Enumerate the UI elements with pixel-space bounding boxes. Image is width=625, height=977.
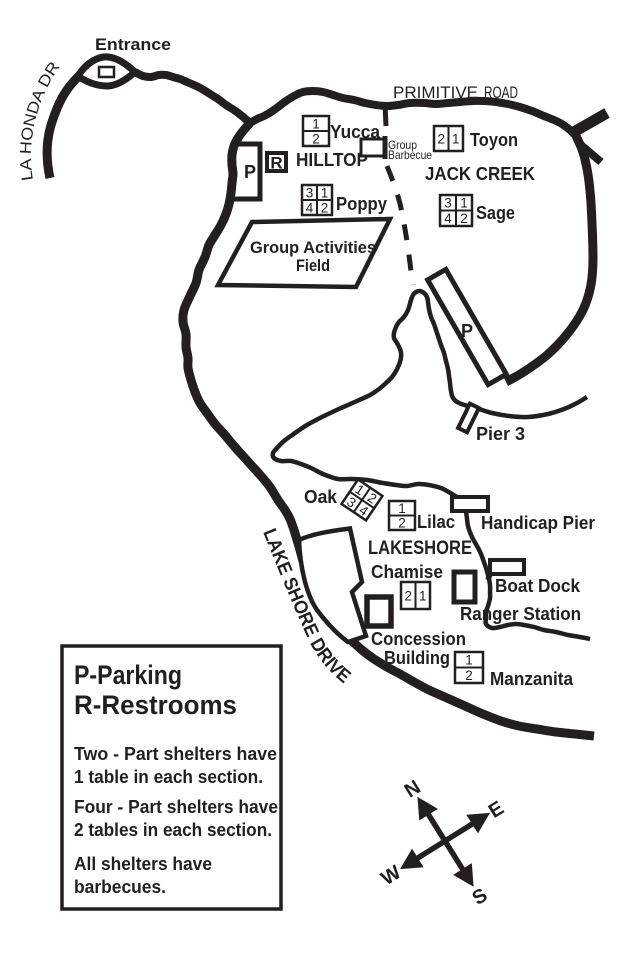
svg-text:R: R bbox=[270, 154, 282, 173]
svg-text:Field: Field bbox=[296, 256, 330, 275]
svg-text:Concession: Concession bbox=[371, 629, 466, 649]
svg-text:2: 2 bbox=[437, 131, 445, 146]
svg-text:1: 1 bbox=[398, 501, 406, 516]
svg-text:Chamise: Chamise bbox=[371, 562, 443, 582]
svg-text:2: 2 bbox=[398, 516, 406, 531]
svg-text:1: 1 bbox=[465, 653, 473, 668]
svg-text:P: P bbox=[244, 162, 256, 182]
svg-text:2: 2 bbox=[404, 588, 412, 603]
svg-text:Handicap Pier: Handicap Pier bbox=[481, 513, 595, 533]
svg-text:Entrance: Entrance bbox=[95, 35, 171, 54]
svg-text:4: 4 bbox=[306, 200, 314, 215]
svg-text:Poppy: Poppy bbox=[336, 194, 387, 214]
svg-text:Lilac: Lilac bbox=[417, 512, 455, 532]
svg-text:Building: Building bbox=[384, 648, 450, 668]
svg-text:barbecues.: barbecues. bbox=[74, 877, 166, 897]
svg-text:1: 1 bbox=[321, 185, 329, 200]
svg-text:2: 2 bbox=[321, 200, 329, 215]
svg-text:Ranger Station: Ranger Station bbox=[460, 604, 581, 624]
svg-text:Toyon: Toyon bbox=[470, 130, 518, 150]
svg-text:1 table in each section.: 1 table in each section. bbox=[74, 767, 263, 787]
svg-text:1: 1 bbox=[452, 131, 460, 146]
svg-text:PRIMITIVE: PRIMITIVE bbox=[393, 83, 478, 102]
svg-text:Group Activities: Group Activities bbox=[250, 238, 376, 257]
svg-text:Four - Part shelters have: Four - Part shelters have bbox=[74, 797, 278, 817]
svg-text:ROAD: ROAD bbox=[484, 83, 518, 102]
svg-text:3: 3 bbox=[444, 196, 452, 211]
svg-text:Oak: Oak bbox=[304, 487, 338, 507]
svg-text:Manzanita: Manzanita bbox=[490, 669, 574, 689]
svg-text:2: 2 bbox=[312, 132, 320, 147]
svg-text:1: 1 bbox=[460, 196, 468, 211]
svg-text:3: 3 bbox=[306, 185, 314, 200]
svg-text:Pier 3: Pier 3 bbox=[476, 424, 525, 444]
svg-text:2 tables in each section.: 2 tables in each section. bbox=[74, 820, 272, 840]
svg-text:P-Parking: P-Parking bbox=[74, 660, 182, 690]
svg-text:Two - Part shelters have: Two - Part shelters have bbox=[74, 744, 277, 764]
svg-text:1: 1 bbox=[419, 588, 427, 603]
svg-text:P: P bbox=[461, 321, 473, 341]
svg-text:Sage: Sage bbox=[476, 203, 515, 223]
svg-text:Boat Dock: Boat Dock bbox=[495, 576, 581, 596]
svg-text:HILLTOP: HILLTOP bbox=[296, 150, 368, 170]
svg-text:2: 2 bbox=[465, 668, 473, 683]
svg-text:Barbecue: Barbecue bbox=[388, 148, 432, 162]
svg-text:All shelters have: All shelters have bbox=[74, 854, 212, 874]
svg-text:JACK CREEK: JACK CREEK bbox=[425, 164, 535, 184]
svg-text:LAKESHORE: LAKESHORE bbox=[368, 538, 472, 559]
svg-text:1: 1 bbox=[312, 117, 320, 132]
svg-text:2: 2 bbox=[460, 211, 468, 226]
svg-text:R-Restrooms: R-Restrooms bbox=[74, 690, 237, 720]
svg-text:4: 4 bbox=[444, 211, 452, 226]
